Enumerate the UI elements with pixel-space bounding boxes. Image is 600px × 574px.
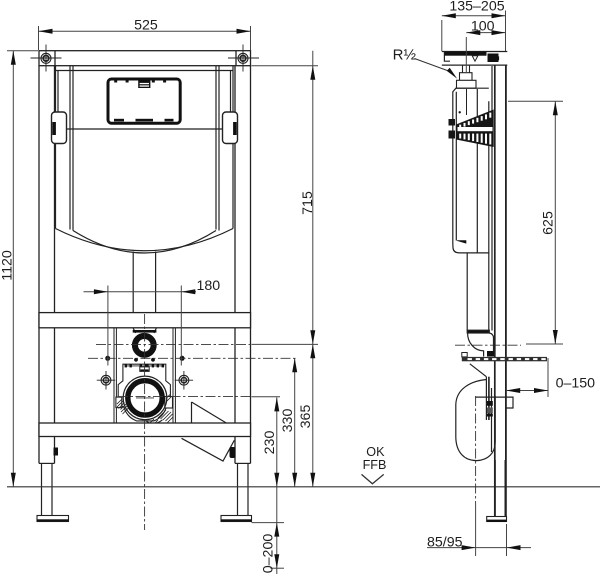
svg-text:OK: OK	[366, 445, 385, 459]
svg-text:715: 715	[300, 191, 316, 215]
svg-text:0–150: 0–150	[556, 375, 596, 391]
svg-text:135–205: 135–205	[449, 0, 504, 15]
svg-text:365: 365	[298, 405, 314, 429]
svg-text:180: 180	[197, 278, 221, 294]
svg-text:R½: R½	[393, 47, 417, 64]
svg-text:330: 330	[280, 409, 296, 433]
svg-text:85/95: 85/95	[427, 534, 463, 550]
svg-text:1120: 1120	[0, 250, 16, 281]
svg-text:0–200: 0–200	[260, 534, 276, 574]
svg-text:230: 230	[262, 431, 278, 455]
svg-text:FFB: FFB	[363, 458, 387, 472]
svg-text:625: 625	[540, 211, 556, 235]
svg-text:100: 100	[471, 19, 495, 35]
svg-text:525: 525	[134, 17, 158, 33]
